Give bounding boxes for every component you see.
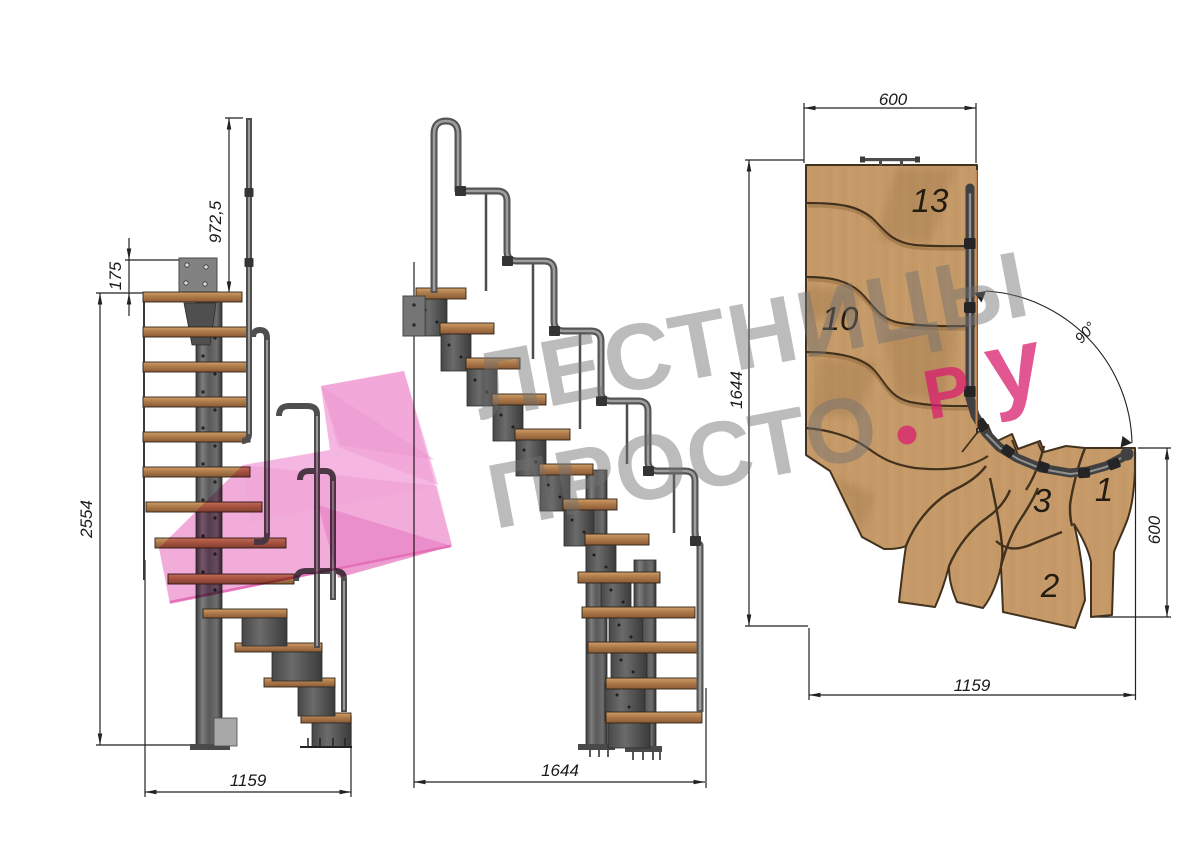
svg-text:13: 13: [912, 182, 949, 219]
svg-text:1159: 1159: [954, 676, 991, 695]
svg-text:1: 1: [1095, 471, 1113, 508]
svg-text:2: 2: [1040, 567, 1059, 604]
svg-text:1644: 1644: [541, 761, 579, 780]
svg-text:3: 3: [1033, 482, 1052, 519]
svg-text:600: 600: [1145, 515, 1164, 544]
svg-text:600: 600: [879, 90, 908, 109]
svg-text:175: 175: [106, 261, 125, 290]
svg-text:972,5: 972,5: [206, 200, 225, 243]
svg-text:2554: 2554: [77, 500, 96, 539]
svg-text:1159: 1159: [230, 771, 267, 790]
